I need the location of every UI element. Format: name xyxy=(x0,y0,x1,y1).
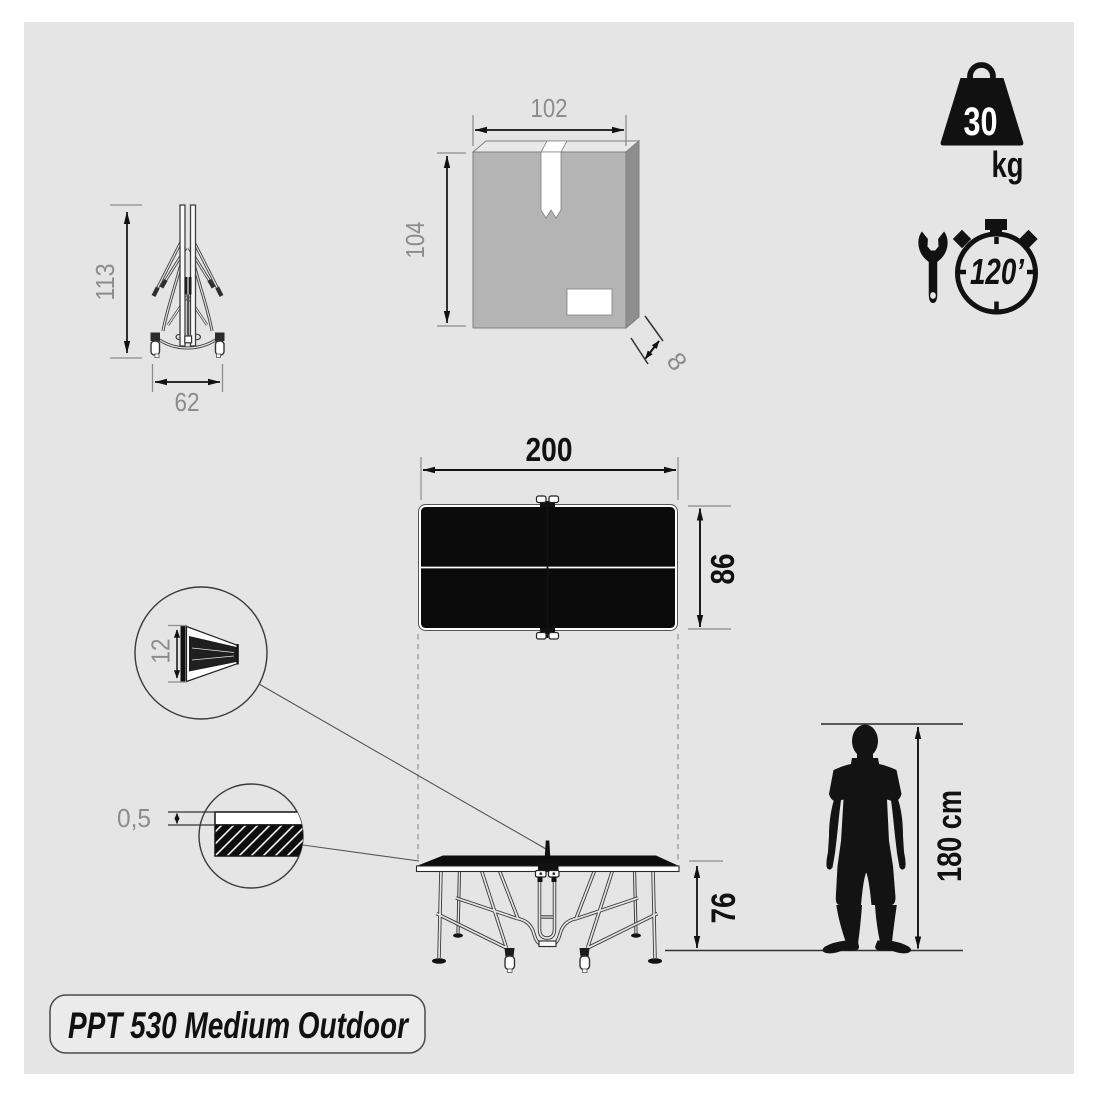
svg-text:30: 30 xyxy=(964,100,998,144)
svg-text:180 cm: 180 cm xyxy=(931,790,969,882)
svg-text:kg: kg xyxy=(992,144,1024,185)
svg-text:PPT 530 Medium Outdoor: PPT 530 Medium Outdoor xyxy=(68,1005,410,1046)
svg-text:12: 12 xyxy=(146,639,176,664)
svg-text:62: 62 xyxy=(175,387,200,417)
svg-text:76: 76 xyxy=(705,893,743,924)
svg-text:102: 102 xyxy=(531,93,568,123)
svg-text:86: 86 xyxy=(704,554,741,585)
svg-text:104: 104 xyxy=(400,222,430,259)
svg-text:200: 200 xyxy=(526,431,573,468)
svg-text:0,5: 0,5 xyxy=(117,803,151,833)
svg-text:113: 113 xyxy=(90,264,120,301)
svg-text:120’: 120’ xyxy=(970,251,1025,292)
